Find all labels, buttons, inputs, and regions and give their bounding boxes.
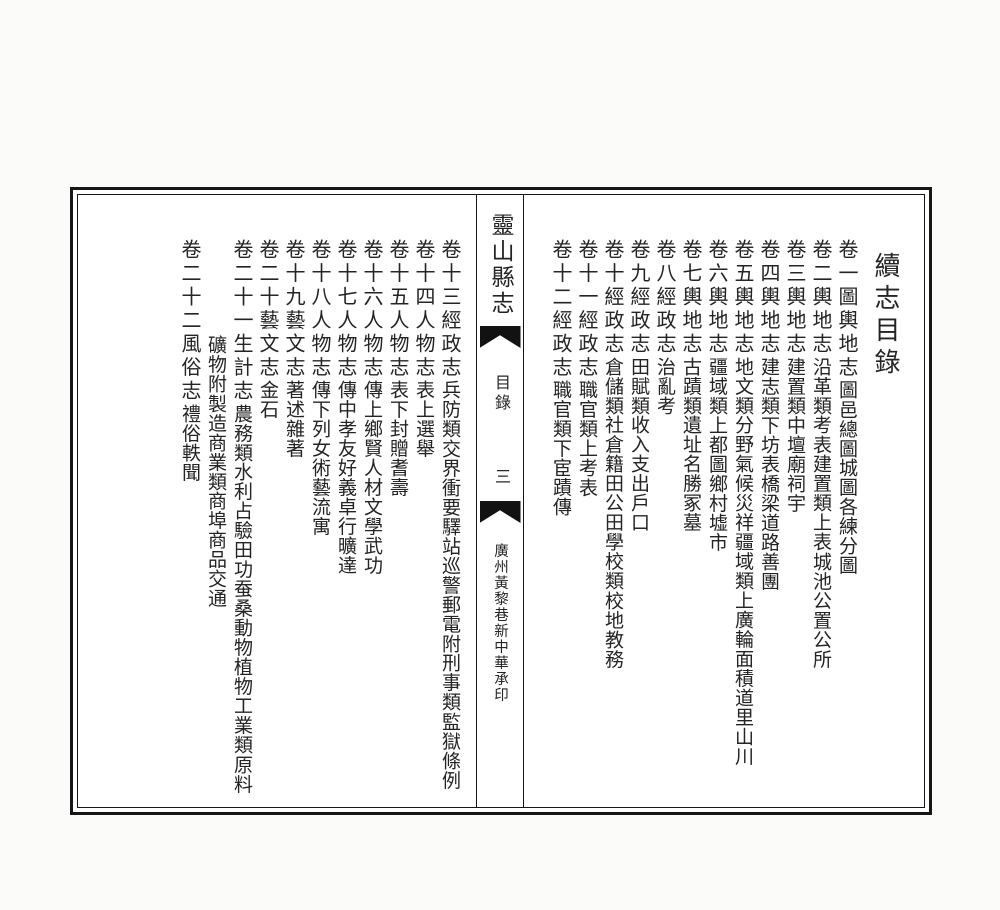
toc-item-group: 監獄條例 [441,712,458,790]
toc-item: 人材 [361,458,382,497]
toc-item-group: 傳中 [337,380,354,419]
toc-item: 職官類下 [550,380,571,458]
toc-item-group: 邑總圖城圖各練分圖 [838,400,855,576]
toc-item-group: 古蹟類 [682,357,699,416]
volume-title: 卷八經政志 [653,239,675,357]
toc-item: 古蹟類 [680,357,701,416]
volume-title: 卷二十藝文志 [256,239,278,380]
toc-item-group: 雜著 [285,419,302,458]
toc-entry: 卷十九藝文志著述雜著 [280,239,306,807]
toc-entry: 卷五輿地志地文類分野氣候災祥疆域類上廣輪面積道里山川 [729,239,755,807]
volume-title: 卷十經政志 [601,239,623,357]
toc-item: 鄉賢 [361,419,382,458]
toc-item: 商業類 [205,433,226,492]
toc-item-group: 交界衝要驛站巡警郵電附 [441,439,458,654]
toc-item-group: 列女術藝流寓 [311,419,328,536]
toc-item-group: 建志類下 [760,357,777,435]
toc-entry: 卷二十藝文志金石 [254,239,280,807]
toc-entry: 卷四輿地志建志類下坊表橋梁道路善團 [755,239,781,807]
page-number: 三 [477,468,523,484]
volume-title: 卷四輿地志 [757,239,779,357]
toc-item-group: 農務類 [233,404,250,463]
section-label: 目錄 [477,374,523,414]
toc-item: 巡警 [439,556,460,595]
toc-item-group: 壇廟祠宇 [786,435,803,513]
toc-item: 職官類上 [576,380,597,458]
toc-item-group: 考表 [812,415,829,454]
volume-title: 卷十八人物志 [308,239,330,380]
toc-item-group: 廣輪面積道里山川 [734,610,751,766]
toc-item: 工業類 [231,696,252,755]
toc-item: 疆域類上 [732,532,753,610]
toc-entry: 卷十八人物志傳下列女術藝流寓 [306,239,332,807]
volume-title: 卷六輿地志 [705,239,727,357]
toc-item: 疆域類上 [706,357,727,435]
toc-item: 文學 [361,497,382,536]
toc-item: 兵防類 [439,380,460,439]
toc-item: 占驗 [231,501,252,540]
toc-item: 交界衝要 [439,439,460,517]
toc-item: 表 [810,532,831,552]
toc-item: 軼聞 [179,443,200,482]
toc-item: 城圖 [836,458,857,497]
toc-item: 公田 [602,493,623,532]
toc-item: 商埠 [205,491,226,530]
toc-item-group: 校地教務 [604,591,621,669]
toc-entry: 卷九經政志田賦類收入支出戶口 [625,239,651,807]
toc-item-group: 著述 [285,380,302,419]
toc-item: 分野 [732,415,753,454]
toc-entry: 卷一圖輿地志圖邑總圖城圖各練分圖 [833,239,859,807]
toc-item-group: 職官類下 [552,380,569,458]
fishtail-lower-icon [480,501,521,523]
toc-item: 倉儲類 [602,357,623,416]
toc-item-group: 刑事類 [441,653,458,712]
toc-item-group: 工業類 [233,696,250,755]
toc-item-group: 金石 [259,380,276,419]
volume-title: 卷十九藝文志 [282,239,304,380]
toc-item: 交通 [205,569,226,608]
volume-title: 卷十二經政志 [549,239,571,380]
toc-item-group: 都圖鄉村墟市 [708,435,725,552]
toc-item-group: 表上 [415,380,432,419]
toc-item: 支出 [628,454,649,493]
toc-item: 郵電附 [439,595,460,654]
toc-item: 列女 [309,419,330,458]
volume-title: 卷二十一生計志 [230,239,252,404]
right-page-columns: 續志目錄 卷一圖輿地志圖邑總圖城圖各練分圖卷二輿地志沿革類考表建置類上表城池公置… [524,195,922,807]
toc-item: 橋梁 [758,474,779,513]
toc-item: 監獄 [439,712,460,751]
toc-entry: 卷八經政志治亂考 [651,239,677,807]
toc-item: 封贈 [387,419,408,458]
toc-item: 災祥 [732,493,753,532]
toc-entry: 卷二輿地志沿革類考表建置類上表城池公置公所 [807,239,833,807]
volume-title: 卷十五人物志 [386,239,408,380]
toc-item: 動物 [231,618,252,657]
toc-item: 製造 [205,394,226,433]
volume-title: 卷二十二風俗志 [178,239,200,404]
toc-item: 卓行 [335,497,356,536]
toc-entry: 卷七輿地志古蹟類遺址名勝冢墓 [677,239,703,807]
toc-item-group: 封贈耆壽 [389,419,406,497]
toc-item: 宦蹟傳 [550,458,571,517]
toc-item-group: 社倉籍田公田 [604,415,621,532]
left-page-columns: 卷十三經政志兵防類交界衝要驛站巡警郵電附刑事類監獄條例卷十四人物志表上選舉卷十五… [78,195,476,807]
toc-item: 學校類 [602,532,623,591]
toc-item-group: 收入支出戶口 [630,415,647,532]
toc-item: 傳下 [309,380,330,419]
toc-item: 公置 [810,591,831,630]
toc-item: 傳中 [335,380,356,419]
toc-entry: 卷六輿地志疆域類上都圖鄉村墟市 [703,239,729,807]
toc-item: 壇廟 [784,435,805,474]
toc-item: 表 [576,478,597,498]
toc-item: 表下 [387,380,408,419]
fishtail-upper-icon [480,326,521,348]
toc-item: 刑事類 [439,653,460,712]
toc-item: 表上 [413,380,434,419]
toc-entry: 卷十五人物志表下封贈耆壽 [384,239,410,807]
toc-item: 金石 [257,380,278,419]
volume-title: 卷十四人物志 [412,239,434,380]
toc-item: 祠宇 [784,474,805,513]
toc-item: 建志類下 [758,357,779,435]
toc-item-group: 遺址名勝冢墓 [682,415,699,532]
toc-item: 好義 [335,458,356,497]
toc-item-group: 宦蹟傳 [552,458,569,517]
toc-item-group: 傳下 [311,380,328,419]
toc-item-group: 疆域類上 [708,357,725,435]
toc-item: 建置類上 [810,454,831,532]
toc-item-group: 圖 [838,380,855,400]
book-title: 靈山縣志 [477,213,523,317]
volume-title: 卷七輿地志 [679,239,701,357]
toc-title: 續志目錄 [868,239,902,807]
toc-item-group: 禮俗 [181,404,198,443]
toc-item: 道里 [732,688,753,727]
toc-item: 廣輪面積 [732,610,753,688]
toc-item-group: 沿革類 [812,357,829,416]
toc-item-group: 學校類 [604,532,621,591]
volume-title: 卷十六人物志 [360,239,382,380]
toc-item-group: 表城池公置公所 [812,532,829,669]
toc-entry: 卷三輿地志建置類中壇廟祠宇 [781,239,807,807]
toc-item: 農務類 [231,404,252,463]
toc-item-group: 水利占驗田功蚕桑動物植物 [233,462,250,696]
toc-item: 選舉 [413,419,434,458]
toc-item: 武功 [361,536,382,575]
toc-entry: 卷十六人物志傳上鄉賢人材文學武功 [358,239,384,807]
toc-item: 戶口 [628,493,649,532]
volume-title: 卷十三經政志 [438,239,460,380]
toc-item-group: 倉儲類 [604,357,621,416]
toc-item: 水利 [231,462,252,501]
toc-item: 坊表 [758,435,779,474]
volume-title: 卷一圖輿地志 [835,239,857,380]
toc-entry: 卷十一經政志職官類上考表 [573,239,599,807]
inner-frame: 卷十三經政志兵防類交界衝要驛站巡警郵電附刑事類監獄條例卷十四人物志表上選舉卷十五… [77,194,925,808]
volume-title: 卷十七人物志 [334,239,356,380]
toc-item: 冢墓 [680,493,701,532]
toc-item-group: 孝友好義卓行曠達 [337,419,354,575]
toc-item-group: 傳上 [363,380,380,419]
toc-item: 名勝 [680,454,701,493]
scanned-book-page: { "toc_title": "續志目錄", "banxin": { "book… [0,0,1000,910]
toc-item: 都圖 [706,435,727,474]
volume-title: 卷九經政志 [627,239,649,357]
toc-item: 各練分圖 [836,497,857,575]
toc-item: 禮俗 [179,404,200,443]
toc-entry: 卷十二經政志職官類下宦蹟傳 [547,239,573,807]
toc-item: 道路 [758,513,779,552]
toc-item: 山川 [732,727,753,766]
toc-item-group: 田賦類 [630,357,647,416]
toc-item: 雜著 [283,419,304,458]
volume-title: 卷三輿地志 [783,239,805,357]
toc-item-group: 考表 [578,458,595,497]
toc-item-group: 鄉賢人材文學武功 [363,419,380,575]
center-column: 靈山縣志 目錄 三 廣州黃黎巷新中華承印 [476,195,524,807]
toc-item: 沿革類 [810,357,831,416]
toc-item-group: 選舉 [415,419,432,458]
toc-item: 圖 [836,380,857,400]
toc-item: 傳上 [361,380,382,419]
toc-item: 蚕桑 [231,579,252,618]
page-frame: 卷十三經政志兵防類交界衝要驛站巡警郵電附刑事類監獄條例卷十四人物志表上選舉卷十五… [70,187,932,815]
toc-item: 耆壽 [387,458,408,497]
toc-item: 條例 [439,751,460,790]
toc-item: 田功 [231,540,252,579]
toc-item: 術藝 [309,458,330,497]
toc-item-group: 兵防類 [441,380,458,439]
toc-item: 社倉 [602,415,623,454]
toc-item: 著述 [283,380,304,419]
toc-item: 鄉村 [706,474,727,513]
toc-item-group: 地文類 [734,357,751,416]
toc-item: 植物 [231,657,252,696]
toc-item: 流寓 [309,497,330,536]
toc-item: 孝友 [335,419,356,458]
toc-item-group: 職官類上 [578,380,595,458]
toc-item: 地文類 [732,357,753,416]
toc-entry: 卷十四人物志表上選舉 [410,239,436,807]
toc-item-group: 表下 [389,380,406,419]
toc-item-group: 分野氣候災祥 [734,415,751,532]
toc-item: 教務 [602,630,623,669]
toc-item: 驛站 [439,517,460,556]
toc-item: 城池 [810,552,831,591]
toc-item-group: 坊表橋梁道路善團 [760,435,777,591]
toc-item-group: 建置類上 [812,454,829,532]
toc-item: 收入 [628,415,649,454]
toc-item-group: 商埠商品交通 [207,491,224,608]
toc-item-group: 建置類中 [786,357,803,435]
volume-title: 卷十一經政志 [575,239,597,380]
toc-item-group: 疆域類上 [734,532,751,610]
toc-item: 考 [576,458,597,478]
printer-imprint: 廣州黃黎巷新中華承印 [477,543,523,703]
toc-item: 田賦類 [628,357,649,416]
toc-item-group: 治亂考 [656,357,673,416]
toc-item: 籍田 [602,454,623,493]
toc-item: 公所 [810,630,831,669]
toc-item: 墟市 [706,513,727,552]
toc-item: 表 [810,435,831,455]
toc-item-group: 軼聞 [181,443,198,482]
toc-entry: 卷二十二風俗志禮俗軼聞 [176,239,202,807]
toc-item-group: 商業類 [207,433,224,492]
toc-item: 治亂考 [654,357,675,416]
toc-item: 曠達 [335,536,356,575]
toc-item: 校地 [602,591,623,630]
toc-item: 氣候 [732,454,753,493]
toc-item: 考 [810,415,831,435]
toc-entry: 卷十經政志倉儲類社倉籍田公田學校類校地教務 [599,239,625,807]
toc-item: 善團 [758,552,779,591]
toc-item: 遺址 [680,415,701,454]
toc-item: 建置類中 [784,357,805,435]
volume-title: 卷五輿地志 [731,239,753,357]
toc-item: 邑總圖 [836,400,857,459]
toc-entry: 卷二十一生計志農務類水利占驗田功蚕桑動物植物工業類原料礦物附製造商業類商埠商品交… [202,239,254,807]
toc-entry: 卷十七人物志傳中孝友好義卓行曠達 [332,239,358,807]
volume-title: 卷二輿地志 [809,239,831,357]
toc-item: 商品 [205,530,226,569]
toc-entry: 卷十三經政志兵防類交界衝要驛站巡警郵電附刑事類監獄條例 [436,239,462,807]
